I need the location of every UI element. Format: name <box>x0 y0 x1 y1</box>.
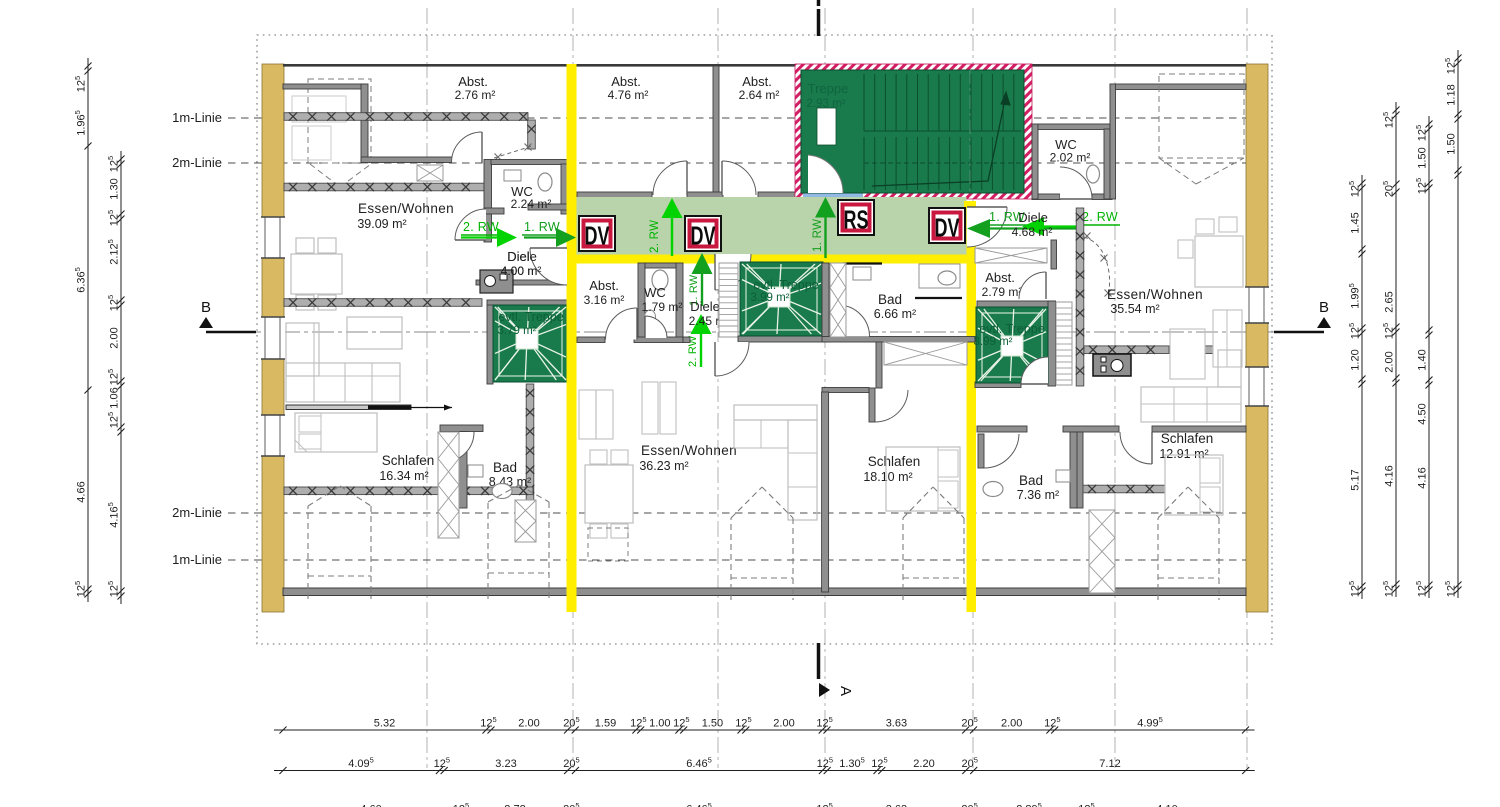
svg-text:A: A <box>837 686 854 696</box>
svg-text:2.00: 2.00 <box>1384 351 1396 372</box>
svg-text:1.50: 1.50 <box>702 718 723 730</box>
svg-text:1.06: 1.06 <box>109 387 121 408</box>
svg-text:4.00 m²: 4.00 m² <box>501 264 542 278</box>
svg-text:Abst.: Abst. <box>985 270 1015 285</box>
svg-text:7.12: 7.12 <box>1099 758 1120 770</box>
svg-text:1.00: 1.00 <box>649 718 670 730</box>
svg-text:B: B <box>201 299 211 316</box>
svg-text:4.76 m²: 4.76 m² <box>608 88 649 102</box>
svg-text:3.63: 3.63 <box>886 718 907 730</box>
svg-text:evtl. Treppe: evtl. Treppe <box>753 278 818 292</box>
svg-text:Diele: Diele <box>1018 210 1048 225</box>
svg-text:4.10: 4.10 <box>1156 804 1177 807</box>
svg-text:2.93 m²: 2.93 m² <box>807 98 846 110</box>
svg-text:2.76 m²: 2.76 m² <box>455 88 496 102</box>
svg-text:Essen/Wohnen: Essen/Wohnen <box>1107 287 1203 302</box>
svg-text:1.79 m²: 1.79 m² <box>642 300 683 314</box>
svg-text:4.16: 4.16 <box>1417 467 1429 488</box>
svg-text:1.59: 1.59 <box>595 718 616 730</box>
svg-text:2m-Linie: 2m-Linie <box>172 155 222 170</box>
svg-text:Essen/Wohnen: Essen/Wohnen <box>358 201 454 216</box>
svg-text:evtl. Treppe: evtl. Treppe <box>498 310 563 324</box>
svg-text:3.79 m²: 3.79 m² <box>498 325 537 337</box>
svg-text:1.40: 1.40 <box>1417 349 1429 370</box>
svg-text:2.65: 2.65 <box>1384 291 1396 312</box>
svg-text:6.66 m²: 6.66 m² <box>874 307 916 321</box>
svg-text:1.50: 1.50 <box>1446 133 1458 154</box>
svg-text:1m-Linie: 1m-Linie <box>172 110 222 125</box>
svg-text:1.18: 1.18 <box>1446 84 1458 105</box>
svg-text:4.68 m²: 4.68 m² <box>1012 225 1053 239</box>
svg-text:2.02 m²: 2.02 m² <box>1050 151 1091 165</box>
svg-text:Diele: Diele <box>690 299 720 314</box>
svg-text:2m-Linie: 2m-Linie <box>172 505 222 520</box>
svg-text:5.32: 5.32 <box>374 718 395 730</box>
svg-text:3.99 m²: 3.99 m² <box>751 292 790 304</box>
svg-text:2. RW: 2. RW <box>463 220 499 234</box>
svg-text:Schlafen: Schlafen <box>382 453 435 468</box>
svg-text:DV: DV <box>691 221 716 251</box>
svg-text:Schlafen: Schlafen <box>1161 431 1214 446</box>
svg-text:1.45: 1.45 <box>1350 212 1362 233</box>
svg-text:5.17: 5.17 <box>1350 469 1362 490</box>
svg-text:Treppe: Treppe <box>808 81 849 96</box>
svg-text:Essen/Wohnen: Essen/Wohnen <box>641 443 737 458</box>
svg-text:4.16: 4.16 <box>1384 465 1396 486</box>
svg-text:2.72: 2.72 <box>504 804 525 807</box>
svg-text:evtl. Treppe: evtl. Treppe <box>979 322 1044 336</box>
svg-text:12.91 m²: 12.91 m² <box>1159 447 1208 461</box>
svg-text:Abst.: Abst. <box>742 74 772 89</box>
svg-text:Diele: Diele <box>507 249 537 264</box>
svg-text:Abst.: Abst. <box>458 74 488 89</box>
svg-text:DV: DV <box>585 221 610 251</box>
svg-text:3.63: 3.63 <box>886 804 907 807</box>
svg-text:2.64 m²: 2.64 m² <box>739 88 780 102</box>
svg-text:WC: WC <box>644 285 666 300</box>
svg-text:2.00: 2.00 <box>773 718 794 730</box>
svg-text:4.60: 4.60 <box>360 804 381 807</box>
svg-text:1. RW: 1. RW <box>524 220 560 234</box>
svg-text:3.23: 3.23 <box>495 758 516 770</box>
svg-text:2.00: 2.00 <box>1001 718 1022 730</box>
svg-text:Schlafen: Schlafen <box>868 454 921 469</box>
svg-text:1. RW: 1. RW <box>812 219 824 252</box>
svg-text:DV: DV <box>935 213 960 243</box>
svg-text:1.30: 1.30 <box>109 178 121 199</box>
svg-text:Bad: Bad <box>878 292 902 307</box>
svg-text:Abst.: Abst. <box>589 278 619 293</box>
svg-text:2.79 m²: 2.79 m² <box>982 285 1023 299</box>
svg-text:B: B <box>1319 299 1329 316</box>
svg-text:18.10 m²: 18.10 m² <box>863 470 912 484</box>
svg-text:Bad: Bad <box>493 460 517 475</box>
svg-text:Abst.: Abst. <box>611 74 641 89</box>
svg-text:7.36 m²: 7.36 m² <box>1017 488 1059 502</box>
svg-text:2. RW: 2. RW <box>1082 210 1118 224</box>
svg-text:Bad: Bad <box>1019 473 1043 488</box>
svg-text:2.20: 2.20 <box>913 758 934 770</box>
svg-text:2.00: 2.00 <box>518 718 539 730</box>
svg-text:16.34 m²: 16.34 m² <box>379 469 428 483</box>
svg-text:4.50: 4.50 <box>1417 403 1429 424</box>
svg-text:1.50: 1.50 <box>1417 147 1429 168</box>
svg-text:1m-Linie: 1m-Linie <box>172 552 222 567</box>
svg-text:4.66: 4.66 <box>76 481 88 502</box>
svg-text:2.00: 2.00 <box>109 327 121 348</box>
svg-text:1.20: 1.20 <box>1350 349 1362 370</box>
svg-text:2.24 m²: 2.24 m² <box>511 197 552 211</box>
svg-text:3.16 m²: 3.16 m² <box>584 293 625 307</box>
svg-text:36.23 m²: 36.23 m² <box>639 459 688 473</box>
svg-text:3.99 m²: 3.99 m² <box>974 336 1013 348</box>
svg-text:2. RW: 2. RW <box>649 220 661 253</box>
svg-text:39.09 m²: 39.09 m² <box>357 217 406 231</box>
svg-text:35.54 m²: 35.54 m² <box>1110 302 1159 316</box>
svg-text:RS: RS <box>844 205 869 235</box>
